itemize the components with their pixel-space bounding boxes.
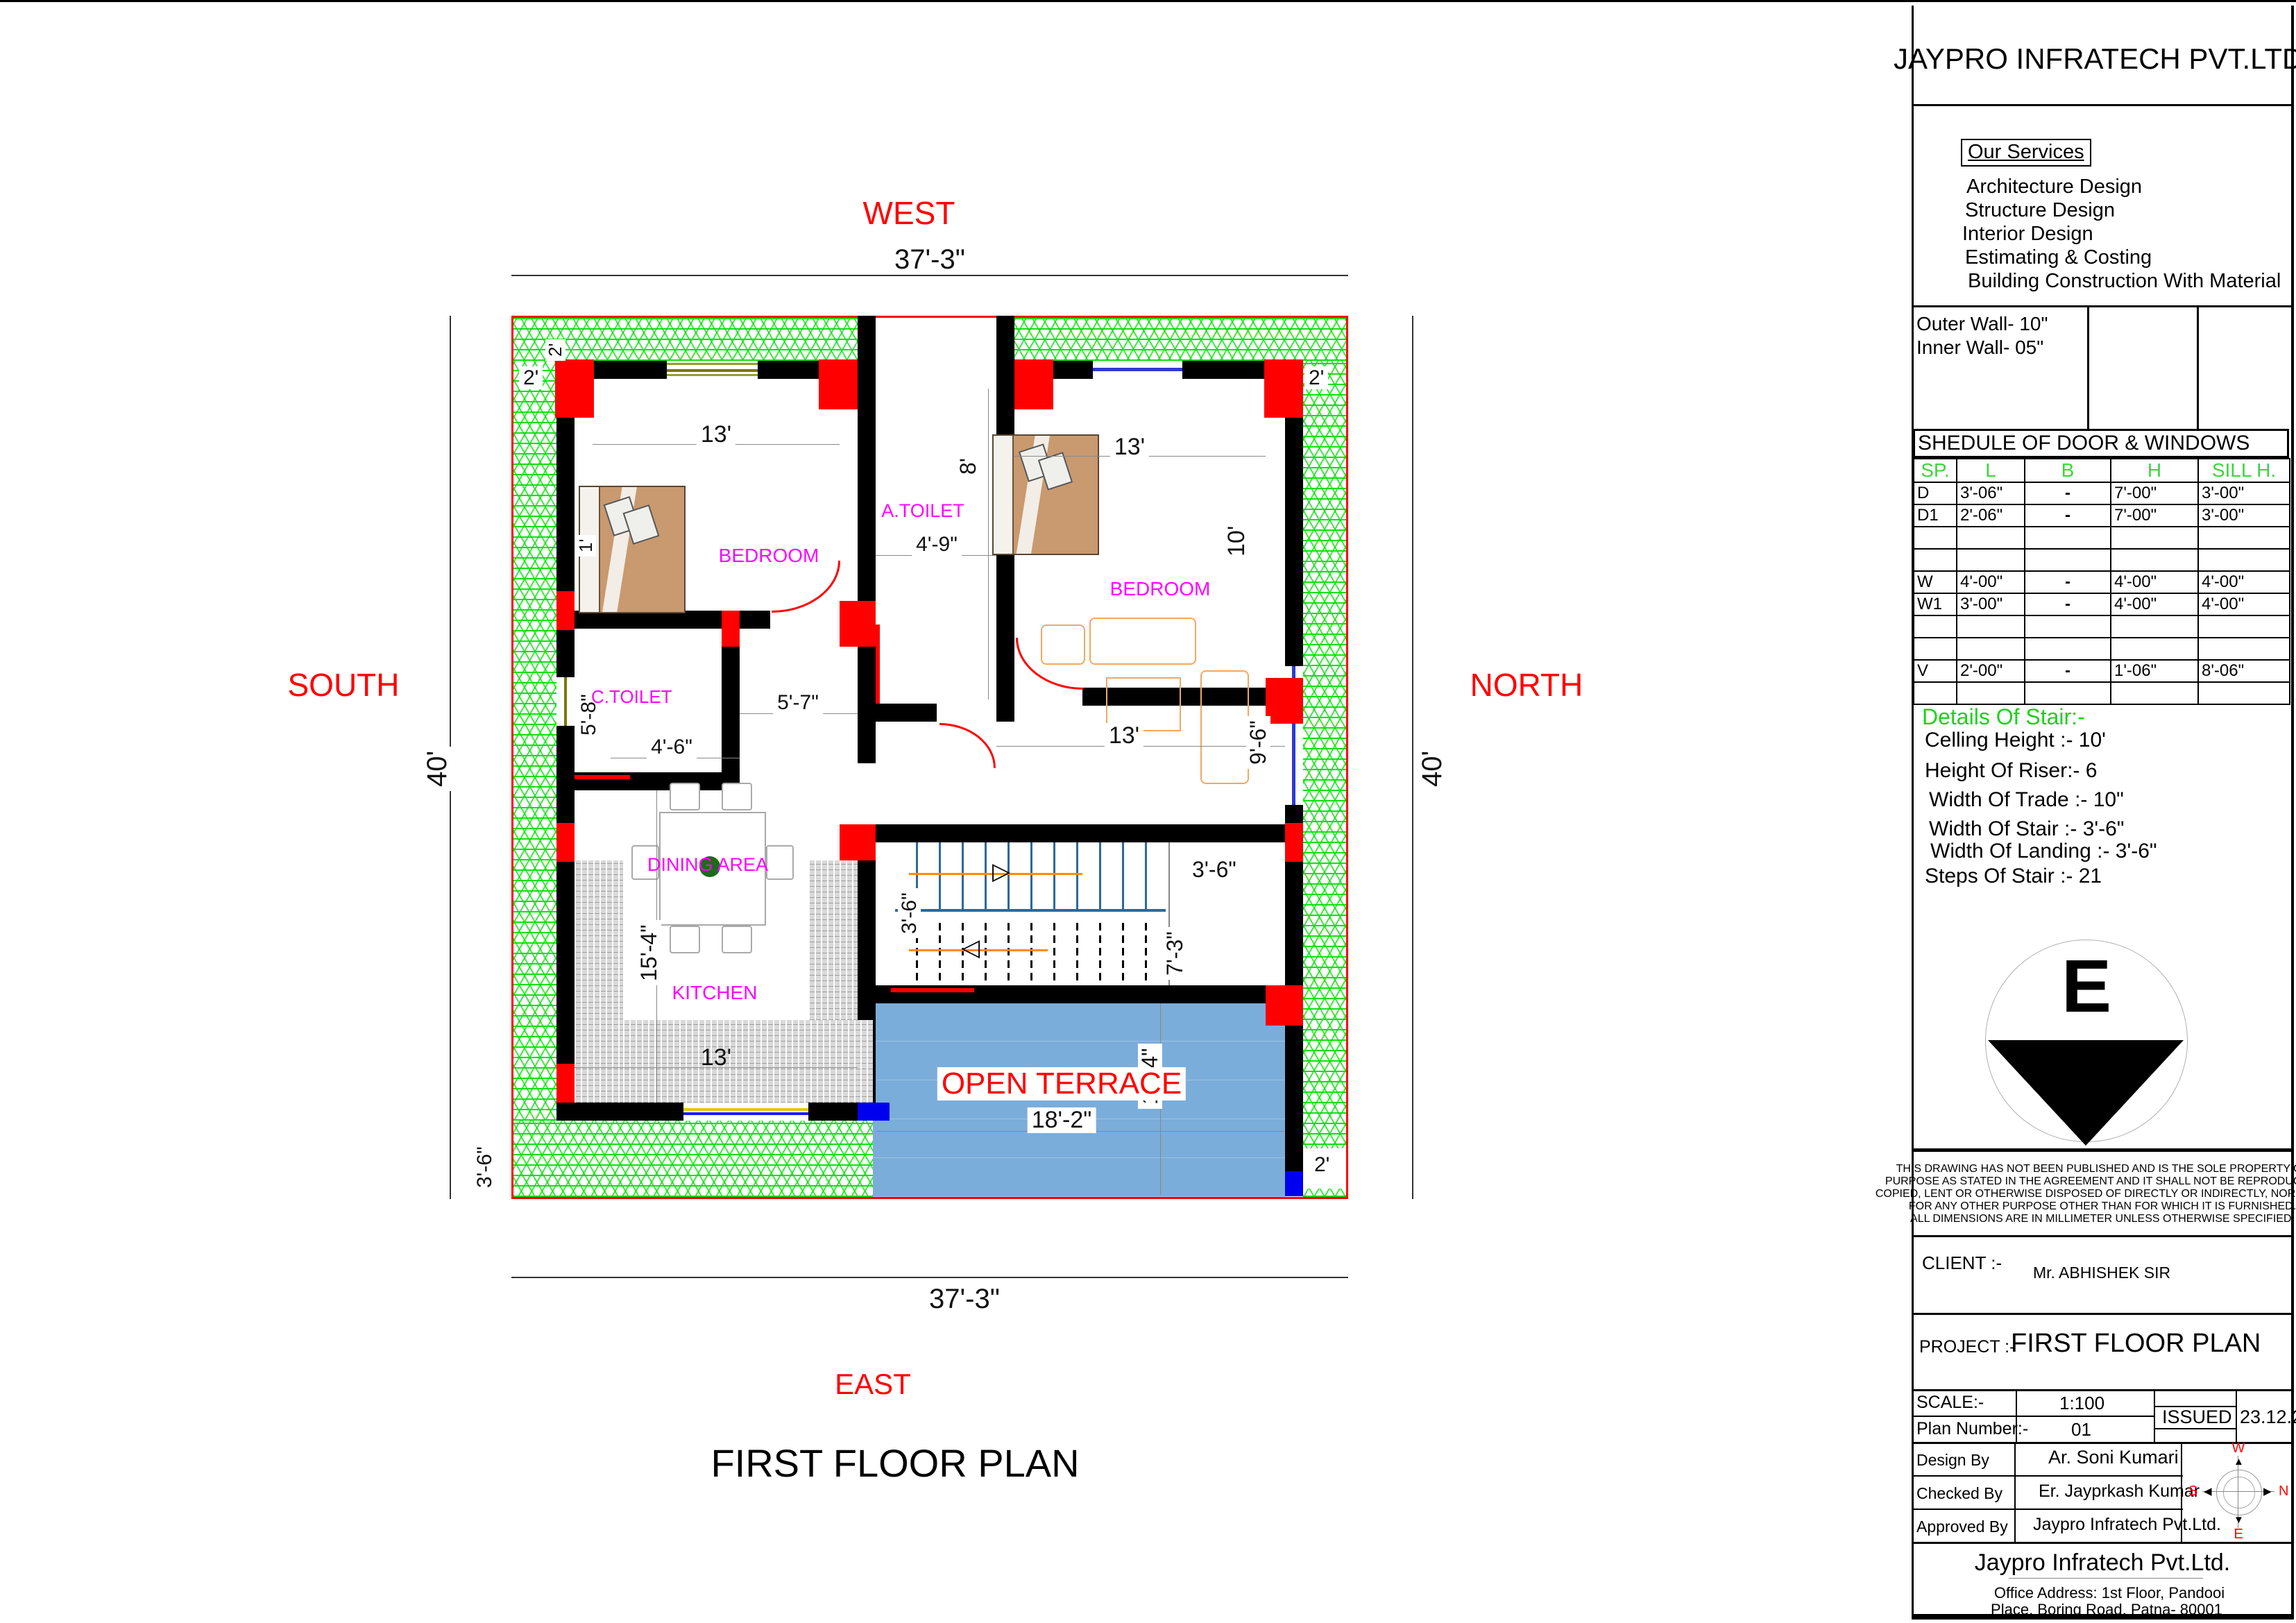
bed-right xyxy=(992,434,1099,555)
cell xyxy=(1914,682,1957,704)
table-row xyxy=(1914,682,2290,704)
dim-stair-height: 7'-3" xyxy=(1163,927,1187,980)
chair xyxy=(670,926,700,953)
cell: 7'-00" xyxy=(2111,504,2198,527)
cell: 4'-00" xyxy=(2111,593,2198,615)
stair-detail-line: Celling Height :- 10' xyxy=(1925,729,2106,751)
cell: 4'-00" xyxy=(2111,571,2198,593)
room-label-dining: DINING AREA xyxy=(647,855,768,876)
cell: D xyxy=(1914,482,1957,504)
grid-line xyxy=(1912,1542,2294,1544)
sheet-top-border xyxy=(0,0,2296,2)
design-by-value: Ar. Soni Kumari xyxy=(2048,1447,2179,1468)
room-label-ctoilet: C.TOILET xyxy=(591,687,672,707)
cell xyxy=(1957,527,2025,549)
scale-label: SCALE:- xyxy=(1916,1393,1984,1413)
mini-compass-w: W xyxy=(2232,1441,2245,1456)
issued-line xyxy=(2154,1428,2237,1429)
dim-stair-right: 3'-6" xyxy=(1188,858,1241,882)
kitchen-platform-bottom xyxy=(623,1020,873,1103)
service-item: Interior Design xyxy=(1962,223,2093,246)
issued-label: ISSUED xyxy=(2162,1407,2232,1428)
cell xyxy=(2198,682,2290,704)
dim-border-right: 2' xyxy=(1304,366,1328,389)
cell xyxy=(2025,527,2111,549)
dim-lobby-width: 5'-7" xyxy=(773,691,823,714)
table-row: D12'-06"-7'-00"3'-00" xyxy=(1914,504,2290,527)
footer-underline xyxy=(2009,1578,2203,1579)
approved-by-value: Jaypro Infratech Pvt.Ltd. xyxy=(2033,1515,2221,1535)
stair-detail-line: Width Of Landing :- 3'-6" xyxy=(1930,840,2157,863)
cell xyxy=(1957,682,2025,704)
mini-compass-n: N xyxy=(2279,1484,2288,1499)
stair-flight-down xyxy=(895,919,1166,985)
stair-mid-rail xyxy=(895,909,1166,912)
plan-number-value: 01 xyxy=(2071,1420,2091,1440)
cell xyxy=(1914,638,1957,660)
sofa-long xyxy=(1089,618,1196,665)
schedule-header: B xyxy=(2025,459,2111,482)
cell xyxy=(1914,549,1957,571)
divider xyxy=(1912,1235,2294,1237)
cell: 4'-00" xyxy=(2198,571,2290,593)
dim-border-bottom-right: 2' xyxy=(1310,1153,1334,1176)
stair-arrow-down-icon: ◁ xyxy=(962,935,980,961)
disclaimer-line: THIS DRAWING HAS NOT BEEN PUBLISHED AND … xyxy=(1896,1163,2296,1175)
column xyxy=(556,1064,575,1103)
chair xyxy=(766,845,794,880)
direction-arrow-icon xyxy=(1988,1040,2184,1146)
column xyxy=(819,359,858,409)
column xyxy=(556,823,575,862)
dim-atoilet-height: 8' xyxy=(956,454,980,479)
stair-arrow-up-icon: ▷ xyxy=(992,859,1010,885)
cell: 3'-00" xyxy=(1957,593,2025,615)
approved-by-label: Approved By xyxy=(1916,1518,2008,1536)
chair xyxy=(722,783,752,810)
mini-compass-arrow-icon: ▼ xyxy=(2234,1514,2244,1526)
direction-letter: E xyxy=(2061,945,2111,1028)
column xyxy=(555,359,594,418)
mini-compass-arrow-icon: ◀ xyxy=(2204,1485,2212,1497)
compass-south: SOUTH xyxy=(288,668,400,703)
window-bedroom-left-icon xyxy=(667,361,758,379)
table-row: W4'-00"-4'-00"4'-00" xyxy=(1914,571,2290,593)
red-wall-line-atoilet xyxy=(876,624,880,704)
dim-ctoilet-width: 4'-6" xyxy=(647,736,697,758)
sidebar-left-border xyxy=(1912,6,1914,1620)
cell: 8'-06" xyxy=(2198,660,2290,682)
cell xyxy=(2025,682,2111,704)
compass-north: NORTH xyxy=(1470,668,1583,703)
dim-overall-top: 37'-3" xyxy=(890,244,969,275)
plan-number-label: Plan Number:- xyxy=(1916,1420,2028,1439)
dim-terrace-width: 18'-2" xyxy=(1028,1107,1096,1133)
room-label-bedroom-right: BEDROOM xyxy=(1110,579,1211,600)
stair-details-title: Details Of Stair:- xyxy=(1922,705,2085,729)
column xyxy=(840,601,876,647)
grid-line xyxy=(1912,1475,2183,1477)
plan-title: FIRST FLOOR PLAN xyxy=(711,1442,1079,1485)
dim-overall-right: 40' xyxy=(1417,747,1447,791)
dim-bed2-width: 13' xyxy=(1110,434,1149,460)
dim-overall-left: 40' xyxy=(422,747,452,791)
grid-vline xyxy=(2014,1442,2016,1542)
sofa-side xyxy=(1200,670,1249,784)
table-row xyxy=(1914,615,2290,638)
cell: - xyxy=(2025,482,2111,504)
schedule-header-row: SP. L B H SILL H. xyxy=(1914,459,2290,482)
grid-vline xyxy=(2154,1389,2155,1442)
dim-stair-left: 3'-6" xyxy=(898,888,921,938)
lawn-strip-top-right xyxy=(1014,318,1346,361)
stair-detail-line: Steps Of Stair :- 21 xyxy=(1925,865,2102,887)
service-item: Building Construction With Material xyxy=(1968,271,2281,293)
project-label: PROJECT :- xyxy=(1919,1338,2015,1357)
cell xyxy=(1957,615,2025,638)
room-label-bedroom-left: BEDROOM xyxy=(719,545,819,567)
wall-bed2-bottom-a xyxy=(996,688,1013,706)
cell: W1 xyxy=(1914,593,1957,615)
table-row: W13'-00"-4'-00"4'-00" xyxy=(1914,593,2290,615)
door-line-terrace xyxy=(891,988,974,992)
client-label: CLIENT :- xyxy=(1922,1253,2002,1273)
cell: 1'-06" xyxy=(2111,660,2198,682)
inner-wall-spec: Inner Wall- 05" xyxy=(1916,337,2043,359)
dim-atoilet-width: 4'-9" xyxy=(912,533,962,556)
dim-border-top: 2' xyxy=(545,339,566,361)
stair-detail-line: Height Of Riser:- 6 xyxy=(1925,759,2097,782)
cell: 3'-00" xyxy=(2198,482,2290,504)
stair-flight-up xyxy=(895,842,1166,909)
kitchen-platform-left xyxy=(575,860,623,1103)
disclaimer-line: PURPOSE AS STATED IN THE AGREEMENT AND I… xyxy=(1885,1175,2296,1188)
cell xyxy=(2111,615,2198,638)
wall-atoilet-left xyxy=(858,316,876,722)
table-row: V2'-00"-1'-06"8'-06" xyxy=(1914,660,2290,682)
dim-line-atoilet-v xyxy=(988,389,989,699)
table-row xyxy=(1914,527,2290,549)
cell xyxy=(1957,638,2025,660)
divider xyxy=(1912,1313,2294,1315)
checked-by-label: Checked By xyxy=(1916,1485,2002,1502)
window-kitchen-icon xyxy=(683,1103,808,1121)
divider xyxy=(1912,104,2294,106)
dim-line-right xyxy=(1412,316,1413,1199)
cell xyxy=(2198,527,2290,549)
cell xyxy=(2198,549,2290,571)
mini-compass-arrow-icon: ▲ xyxy=(2234,1456,2244,1468)
scale-value: 1:100 xyxy=(2059,1393,2104,1413)
footer-address-line2: Place, Boring Road, Patna- 80001 xyxy=(1991,1601,2222,1618)
mini-compass-s: S xyxy=(2188,1484,2197,1499)
cell xyxy=(2025,549,2111,571)
column xyxy=(1264,359,1303,418)
stair-detail-line: Width Of Stair :- 3'-6" xyxy=(1929,817,2124,840)
room-label-atoilet: A.TOILET xyxy=(881,501,964,522)
divider-thick xyxy=(1912,1148,2294,1152)
footer-company: Jaypro Infratech Pvt.Ltd. xyxy=(1975,1550,2231,1576)
disclaimer-line: COPIED, LENT OR OTHERWISE DISPOSED OF DI… xyxy=(1876,1188,2296,1200)
room-label-terrace: OPEN TERRACE xyxy=(937,1067,1186,1101)
stair-dash-overlay xyxy=(895,919,1166,985)
wallbox-divider-2 xyxy=(2197,305,2199,430)
issued-date: 23.12.25 xyxy=(2240,1407,2296,1428)
dim-border-left: 2' xyxy=(519,366,543,389)
column xyxy=(1014,359,1053,409)
cell: - xyxy=(2025,504,2111,527)
mini-compass-circle-inner xyxy=(2223,1477,2255,1509)
divider xyxy=(1912,305,2294,307)
wall-atoilet-bottom xyxy=(876,704,937,722)
cell xyxy=(2111,527,2198,549)
footer-address-line1: Office Address: 1st Floor, Pandooi xyxy=(1994,1585,2225,1601)
mini-compass-arrow-icon: ▶ xyxy=(2263,1485,2272,1497)
cell xyxy=(2025,638,2111,660)
wall-stair-top xyxy=(858,824,1303,842)
drawing-sheet: ▷ ◁ 37'-3" 37'-3" 40' 40' 2' 2' 2' 2' 3'… xyxy=(0,0,2296,1623)
bed-headboard xyxy=(994,436,1014,554)
grid-vline xyxy=(2236,1389,2237,1442)
dim-overall-bottom: 37'-3" xyxy=(925,1284,1004,1314)
checked-by-value: Er. Jayprkash Kumar xyxy=(2039,1482,2200,1502)
column xyxy=(840,824,876,860)
cell xyxy=(1914,615,1957,638)
cell xyxy=(2111,638,2198,660)
chair xyxy=(722,926,752,953)
cell: - xyxy=(2025,660,2111,682)
lawn-strip-right xyxy=(1303,361,1346,1197)
lawn-strip-left xyxy=(513,361,556,1121)
window-ctoilet-icon xyxy=(556,677,575,726)
column xyxy=(1266,985,1303,1026)
cell: 4'-00" xyxy=(2198,593,2290,615)
dim-bed1-width: 13' xyxy=(697,422,735,448)
cell: 7'-00" xyxy=(2111,482,2198,504)
service-item: Estimating & Costing xyxy=(1965,247,2152,269)
schedule-title: SHEDULE OF DOOR & WINDOWS xyxy=(1918,432,2250,454)
mini-compass-e: E xyxy=(2234,1527,2243,1542)
service-item: Structure Design xyxy=(1965,200,2115,222)
stair-detail-line: Width Of Trade :- 10" xyxy=(1929,788,2124,811)
cell: V xyxy=(1914,660,1957,682)
cell xyxy=(2198,638,2290,660)
cell xyxy=(2198,615,2290,638)
compass-west: WEST xyxy=(863,196,955,231)
project-value: FIRST FLOOR PLAN xyxy=(2011,1329,2261,1359)
wall-ctoilet-right xyxy=(722,629,740,790)
sidebar-right-border xyxy=(2291,6,2294,1620)
grid-line xyxy=(1912,1509,2183,1510)
schedule-header: H xyxy=(2111,459,2198,482)
column-blue xyxy=(858,1103,890,1121)
cell: 2'-00" xyxy=(1957,660,2025,682)
column-blue xyxy=(1285,1171,1303,1196)
wall-terrace-right xyxy=(1285,1003,1303,1173)
disclaimer-line: ALL DIMENSIONS ARE IN MILLIMETER UNLESS … xyxy=(1910,1213,2295,1225)
dim-line-bottom xyxy=(511,1277,1348,1278)
dim-kitchen-width: 13' xyxy=(701,1045,731,1071)
outer-wall-spec: Outer Wall- 10" xyxy=(1916,314,2048,335)
disclaimer-line: FOR ANY OTHER PURPOSE OTHER THAN FOR WHI… xyxy=(1909,1200,2296,1213)
cell xyxy=(2111,682,2198,704)
kitchen-platform-right xyxy=(808,860,858,1020)
service-item: Architecture Design xyxy=(1966,176,2142,198)
grid-line xyxy=(1912,1416,2155,1417)
cell: 2'-06" xyxy=(1957,504,2025,527)
cell xyxy=(1957,549,2025,571)
cell xyxy=(1914,527,1957,549)
design-by-label: Design By xyxy=(1916,1452,1989,1469)
table-row xyxy=(1914,638,2290,660)
door-window-schedule: SP. L B H SILL H. D3'-06"-7'-00"3'-00" D… xyxy=(1913,458,2290,705)
schedule-header: SILL H. xyxy=(2198,459,2290,482)
bed-pillow xyxy=(1038,452,1073,490)
client-value: Mr. ABHISHEK SIR xyxy=(2033,1264,2170,1282)
compass-east: EAST xyxy=(835,1368,911,1400)
lawn-strip-bottom xyxy=(513,1121,873,1197)
cell: - xyxy=(2025,571,2111,593)
dim-border-bottom-left: 3'-6" xyxy=(473,1142,496,1192)
column xyxy=(722,611,740,647)
wall-lobby-stub xyxy=(858,722,876,763)
cell xyxy=(2111,549,2198,571)
table-row xyxy=(1914,549,2290,571)
window-bedroom-right-icon xyxy=(1093,361,1182,379)
company-name: JAYPRO INFRATECH PVT.LTD. xyxy=(1894,43,2296,75)
wallbox-divider-1 xyxy=(2087,305,2089,430)
cell xyxy=(2025,615,2111,638)
dim-bed1-note: 1' xyxy=(576,535,596,556)
dim-hall-width: 13' xyxy=(1105,723,1143,749)
dim-hall-window: 9'-6" xyxy=(1246,716,1270,769)
column xyxy=(1285,823,1303,862)
schedule-header: SP. xyxy=(1914,459,1957,482)
cell: D1 xyxy=(1914,504,1957,527)
column xyxy=(556,591,575,630)
sofa-single xyxy=(1041,624,1085,665)
dim-line-top xyxy=(511,275,1348,276)
chair xyxy=(670,783,700,810)
dim-bed2-height: 10' xyxy=(1224,522,1250,561)
cell: - xyxy=(2025,593,2111,615)
door-line-ctoilet xyxy=(575,775,630,779)
wall-left xyxy=(556,379,575,1121)
room-label-kitchen: KITCHEN xyxy=(672,983,758,1004)
cell: 3'-06" xyxy=(1957,482,2025,504)
cell: 4'-00" xyxy=(1957,571,2025,593)
schedule-header: L xyxy=(1957,459,2025,482)
cell: 3'-00" xyxy=(2198,504,2290,527)
table-row: D3'-06"-7'-00"3'-00" xyxy=(1914,482,2290,504)
cell: W xyxy=(1914,571,1957,593)
column xyxy=(1266,678,1303,724)
dim-dining-height: 15'-4" xyxy=(637,920,661,985)
services-title: Our Services xyxy=(1961,139,2091,167)
